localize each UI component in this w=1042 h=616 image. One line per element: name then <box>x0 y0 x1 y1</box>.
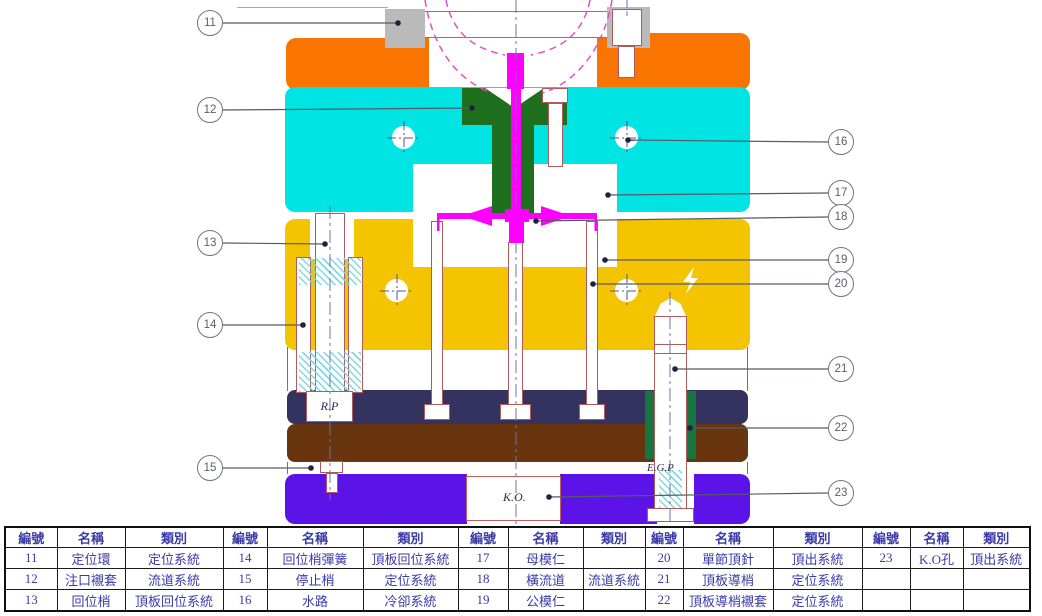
mold-assembly-drawing: R.P K.O. E.G.P <box>0 0 1042 616</box>
guide-pin-label: E.G.P <box>647 462 674 474</box>
parts-table-cell: 頂出系統 <box>773 548 862 569</box>
parts-table-cell: 頂板導梢襯套 <box>683 590 773 612</box>
parts-table-cell <box>910 590 963 612</box>
parts-table-cell: 13 <box>5 590 57 612</box>
parts-table-cell <box>862 590 910 612</box>
parts-table-cell: 定位系統 <box>773 590 862 612</box>
parts-table-cell: 11 <box>5 548 57 569</box>
parts-table-cell: 15 <box>223 569 267 590</box>
parts-table-cell <box>910 569 963 590</box>
parts-table-cell: 17 <box>458 548 508 569</box>
ejector-pin-head <box>579 404 605 420</box>
bottom-clamp-plate-mid <box>560 474 657 524</box>
parts-table-cell: 回位梢彈簧 <box>267 548 363 569</box>
parts-table-header: 名稱 <box>508 527 583 548</box>
top-reference-line <box>237 7 388 8</box>
ejector-pin <box>431 221 443 406</box>
locating-ring-band <box>423 11 610 38</box>
callout-balloon-17: 17 <box>828 180 854 206</box>
bottom-clamp-plate-right <box>694 474 750 524</box>
water-line-hole <box>615 126 638 149</box>
parts-table-cell: 流道系統 <box>583 569 645 590</box>
callout-balloon-19: 19 <box>828 247 854 273</box>
sprue-puller-head <box>500 404 531 420</box>
parts-table-cell: 定位環 <box>57 548 125 569</box>
parts-table-header: 編號 <box>862 527 910 548</box>
parts-table-cell: 注口襯套 <box>57 569 125 590</box>
parts-list: 編號名稱類別編號名稱類別編號名稱類別編號名稱類別編號名稱類別 11定位環定位系統… <box>4 526 1031 612</box>
parts-table-cell <box>862 569 910 590</box>
parts-table-cell: 19 <box>458 590 508 612</box>
guide-pin-foot <box>647 508 694 522</box>
callout-balloon-12: 12 <box>197 97 223 123</box>
parts-table-header: 類別 <box>363 527 458 548</box>
mold-cross-section: R.P K.O. E.G.P <box>0 0 1042 526</box>
return-pin-label: R.P <box>321 399 339 413</box>
water-line-hole <box>392 126 415 149</box>
parts-table-cell: 流道系統 <box>125 569 223 590</box>
stop-pin-head <box>320 461 343 473</box>
parts-table-cell <box>963 569 1030 590</box>
parts-table-cell: 14 <box>223 548 267 569</box>
return-pin-head: R.P <box>306 391 353 422</box>
guide-pin-spring <box>659 470 682 508</box>
parts-table-header: 名稱 <box>910 527 963 548</box>
ejector-pin <box>586 221 598 406</box>
ejector-pin-head <box>424 404 450 420</box>
callout-balloon-18: 18 <box>828 204 854 230</box>
guide-pin-collar <box>654 344 687 354</box>
parts-table-cell: 水路 <box>267 590 363 612</box>
parts-table-header: 編號 <box>645 527 683 548</box>
parts-table-header: 編號 <box>223 527 267 548</box>
parts-table-cell: 橫流道 <box>508 569 583 590</box>
parts-table-header: 名稱 <box>57 527 125 548</box>
parts-table-cell: 母模仁 <box>508 548 583 569</box>
bushing-screw-head <box>542 88 568 103</box>
cap-screw-shaft <box>618 46 635 78</box>
parts-table: 編號名稱類別編號名稱類別編號名稱類別編號名稱類別編號名稱類別 11定位環定位系統… <box>4 526 1031 612</box>
parts-table-header: 編號 <box>5 527 57 548</box>
sprue-channel <box>511 88 521 215</box>
parts-table-header: 名稱 <box>683 527 773 548</box>
knockout-label: K.O. <box>503 490 526 505</box>
parts-table-header: 類別 <box>773 527 862 548</box>
parts-table-header: 類別 <box>583 527 645 548</box>
parts-table-row: 13回位梢頂板回位系統16水路冷卻系統19公模仁22頂板導梢襯套定位系統 <box>5 590 1030 612</box>
parts-table-cell: 單節頂針 <box>683 548 773 569</box>
parts-table-cell <box>963 590 1030 612</box>
cap-screw-head <box>612 9 642 46</box>
parts-table-row: 11定位環定位系統14回位梢彈簧頂板回位系統17母模仁20單節頂針頂出系統23K… <box>5 548 1030 569</box>
callout-balloon-16: 16 <box>828 129 854 155</box>
parts-table-cell: 回位梢 <box>57 590 125 612</box>
parts-table-cell: 23 <box>862 548 910 569</box>
callout-balloon-23: 23 <box>828 480 854 506</box>
water-line-hole <box>615 279 638 302</box>
parts-table-cell: 頂出系統 <box>963 548 1030 569</box>
bushing-screw-shaft <box>548 103 563 167</box>
return-pin-spring <box>299 352 361 392</box>
callout-balloon-21: 21 <box>828 356 854 382</box>
parts-table-cell: 定位系統 <box>773 569 862 590</box>
parts-table-cell: 公模仁 <box>508 590 583 612</box>
callout-balloon-22: 22 <box>828 415 854 441</box>
parts-table-cell: 16 <box>223 590 267 612</box>
parts-table-header: 類別 <box>963 527 1030 548</box>
parts-table-cell: 頂板回位系統 <box>363 548 458 569</box>
parts-table-cell: 定位系統 <box>125 548 223 569</box>
parts-table-header-row: 編號名稱類別編號名稱類別編號名稱類別編號名稱類別編號名稱類別 <box>5 527 1030 548</box>
parts-table-row: 12注口襯套流道系統15停止梢定位系統18橫流道流道系統21頂板導梢定位系統 <box>5 569 1030 590</box>
locating-ring-left <box>385 9 425 48</box>
parts-table-cell: 18 <box>458 569 508 590</box>
parts-table-header: 名稱 <box>267 527 363 548</box>
parts-table-cell: 20 <box>645 548 683 569</box>
parts-table-header: 編號 <box>458 527 508 548</box>
sprue-puller-pin <box>508 242 523 406</box>
callout-balloon-20: 20 <box>828 271 854 297</box>
stop-pin-shaft <box>326 473 338 493</box>
parts-table-cell: K.O孔 <box>910 548 963 569</box>
parts-table-cell <box>583 548 645 569</box>
parts-table-cell <box>583 590 645 612</box>
water-line-hole <box>385 279 408 302</box>
parts-table-cell: 停止梢 <box>267 569 363 590</box>
parts-table-cell: 頂板回位系統 <box>125 590 223 612</box>
parts-table-cell: 21 <box>645 569 683 590</box>
callout-balloon-11: 11 <box>197 10 223 36</box>
parts-table-cell: 定位系統 <box>363 569 458 590</box>
parts-table-cell: 冷卻系統 <box>363 590 458 612</box>
callout-balloon-14: 14 <box>197 312 223 338</box>
callout-balloon-13: 13 <box>197 230 223 256</box>
bottom-clamp-plate-left <box>285 474 467 524</box>
sprue-melt <box>507 53 524 89</box>
parts-table-header: 類別 <box>125 527 223 548</box>
parts-table-cell: 22 <box>645 590 683 612</box>
parts-table-cell: 12 <box>5 569 57 590</box>
callout-balloon-15: 15 <box>197 455 223 481</box>
return-pin-spring <box>299 258 361 285</box>
parts-table-cell: 頂板導梢 <box>683 569 773 590</box>
